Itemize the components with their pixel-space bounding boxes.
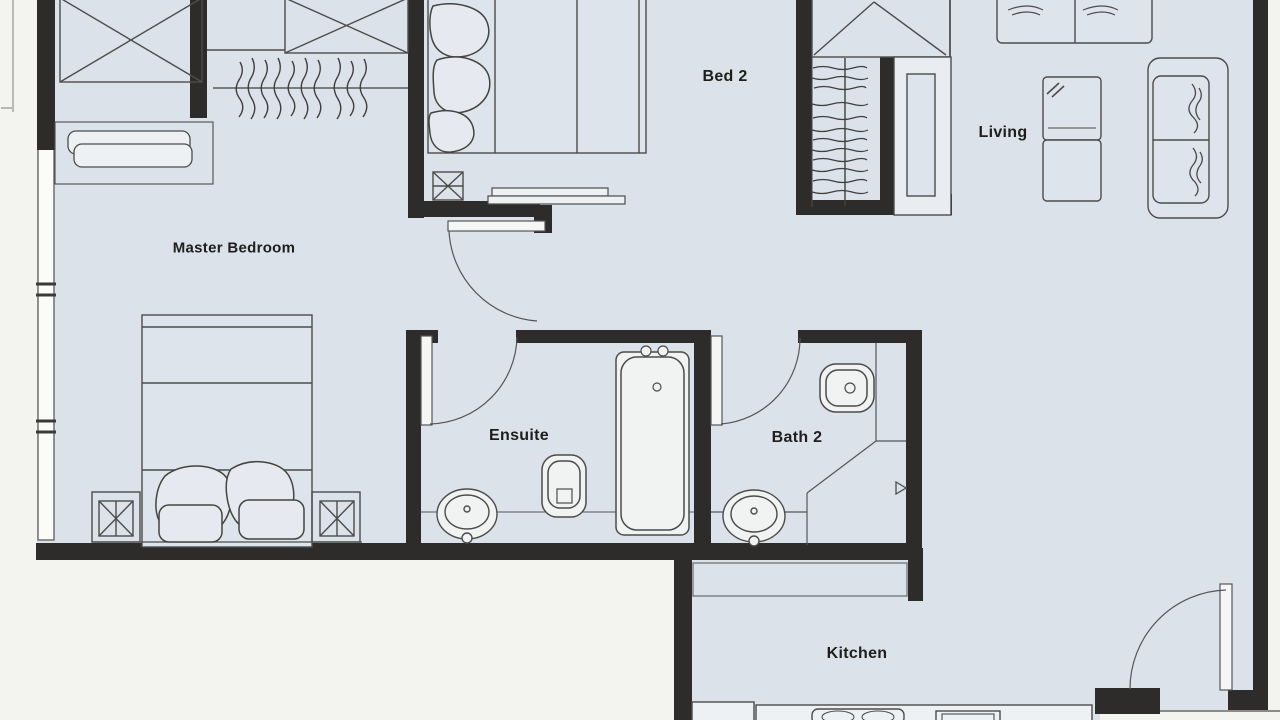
tall-cabinet-icon (894, 57, 951, 215)
ensuite-toilet-icon (542, 455, 586, 517)
floor-plan-drawing (0, 0, 1280, 720)
armchair-icon (1043, 77, 1101, 201)
bath2-toilet-icon (820, 364, 874, 412)
floor-plan: Master Bedroom Bed 2 Living Ensuite Bath… (0, 0, 1280, 720)
sofa2-icon (1148, 58, 1228, 218)
cooktop-icon (936, 711, 1000, 720)
exterior-edge-lines (1, 0, 13, 112)
window-icon (36, 148, 56, 540)
bathtub-icon (616, 346, 689, 535)
desk-shelf-icon (488, 188, 625, 204)
sink-icon (812, 709, 904, 720)
sofa-icon (997, 0, 1152, 43)
kitchen-counter-icon (692, 702, 1092, 720)
